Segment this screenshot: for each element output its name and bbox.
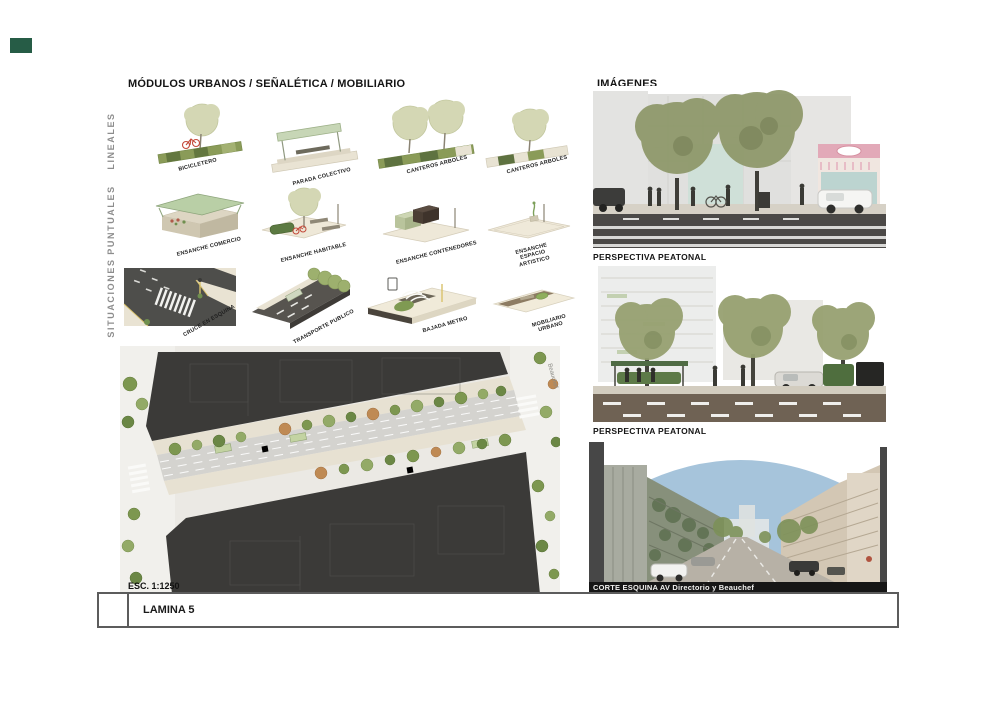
title-block: LAMINA 5 (97, 592, 899, 628)
module-ensanche-espacio-artistico: ENSANCHE ESPACIO ARTISTICO (478, 196, 578, 268)
modules-panel-title: MÓDULOS URBANOS / SEÑALÉTICA / MOBILIARI… (128, 78, 405, 90)
bicicletero-illustration (150, 96, 255, 168)
ensanche-espacio-artistico-illustration (478, 196, 578, 246)
perspective-image-1 (593, 86, 886, 248)
caption-perspectiva-1: PERSPECTIVA PEATONAL (593, 252, 706, 262)
sheet-title: LAMINA 5 (129, 594, 195, 626)
perspective-2-illustration (593, 266, 886, 422)
row-label-puntuales: PUNTUALES (106, 185, 116, 255)
perspective-1-illustration (593, 86, 886, 248)
presentation-board: MÓDULOS URBANOS / SEÑALÉTICA / MOBILIARI… (0, 0, 992, 702)
parada-colectivo-illustration (262, 116, 362, 174)
module-ensanche-contenedores: ENSANCHE CONTENEDORES (375, 196, 479, 262)
logo-mark (10, 38, 32, 53)
row-label-lineales: LINEALES (106, 111, 116, 171)
module-canteros-arboles-2: CANTEROS ARBOLES (480, 102, 575, 182)
caption-perspectiva-2: PERSPECTIVA PEATONAL (593, 426, 706, 436)
title-block-cell (99, 594, 129, 626)
site-plan: Beauchef ESC. 1:1250 (120, 346, 560, 594)
ensanche-contenedores-illustration (375, 196, 479, 250)
module-ensanche-comercio: ENSANCHE COMERCIO (148, 190, 248, 262)
transporte-publico-illustration (246, 262, 356, 334)
module-bicicletero: BICICLETERO (150, 96, 255, 180)
module-mobiliario-urbano: MOBILIARIO URBANO (486, 268, 584, 346)
module-transporte-publico: TRANSPORTE PUBLICO (246, 262, 358, 346)
module-canteros-arboles-1: CANTEROS ARBOLES (372, 96, 480, 182)
corte-image: CORTE ESQUINA AV Directorio y Beauchef (589, 437, 887, 594)
module-bajada-metro: BAJADA METRO (358, 266, 486, 346)
module-ensanche-habitable: ENSANCHE HABITABLE (252, 186, 352, 264)
bajada-metro-illustration (358, 266, 484, 334)
module-cruce-en-esquina: CRUCE EN ESQUINA (122, 266, 240, 344)
row-label-situaciones: SITUACIONES (106, 258, 116, 338)
plan-scale-label: ESC. 1:1250 (128, 581, 180, 591)
ensanche-habitable-illustration (252, 186, 352, 250)
corte-illustration (589, 437, 887, 594)
site-plan-illustration: Beauchef (120, 346, 560, 594)
module-parada-colectivo: PARADA COLECTIVO (262, 116, 362, 186)
cruce-en-esquina-illustration (122, 266, 238, 330)
perspective-image-2 (593, 266, 886, 422)
ensanche-comercio-illustration (148, 190, 248, 244)
